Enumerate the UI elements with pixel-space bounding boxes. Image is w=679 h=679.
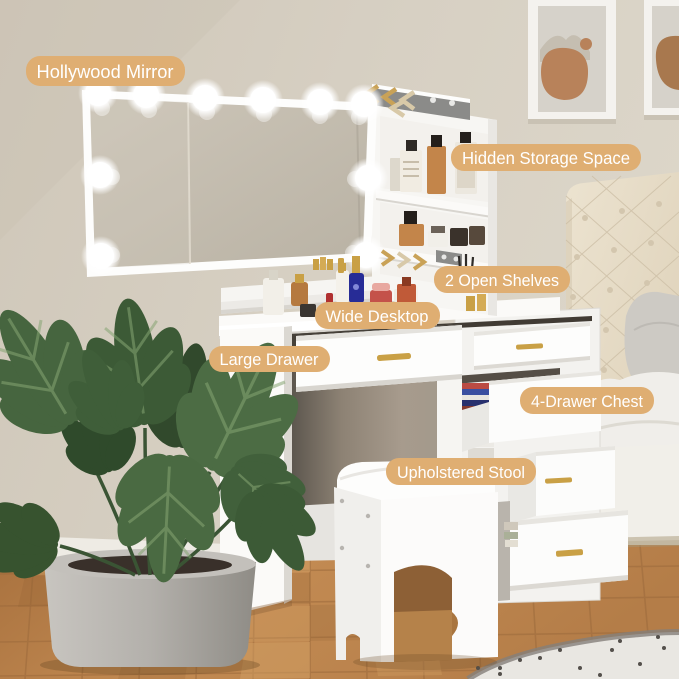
svg-text:Wide Desktop: Wide Desktop: [326, 307, 429, 326]
svg-text:Hidden Storage Space: Hidden Storage Space: [462, 148, 630, 168]
svg-text:2 Open Shelves: 2 Open Shelves: [445, 271, 559, 290]
svg-text:Hollywood Mirror: Hollywood Mirror: [37, 61, 174, 82]
svg-text:Upholstered Stool: Upholstered Stool: [397, 463, 525, 482]
svg-text:Large Drawer: Large Drawer: [220, 350, 319, 369]
svg-text:4-Drawer Chest: 4-Drawer Chest: [531, 392, 643, 411]
